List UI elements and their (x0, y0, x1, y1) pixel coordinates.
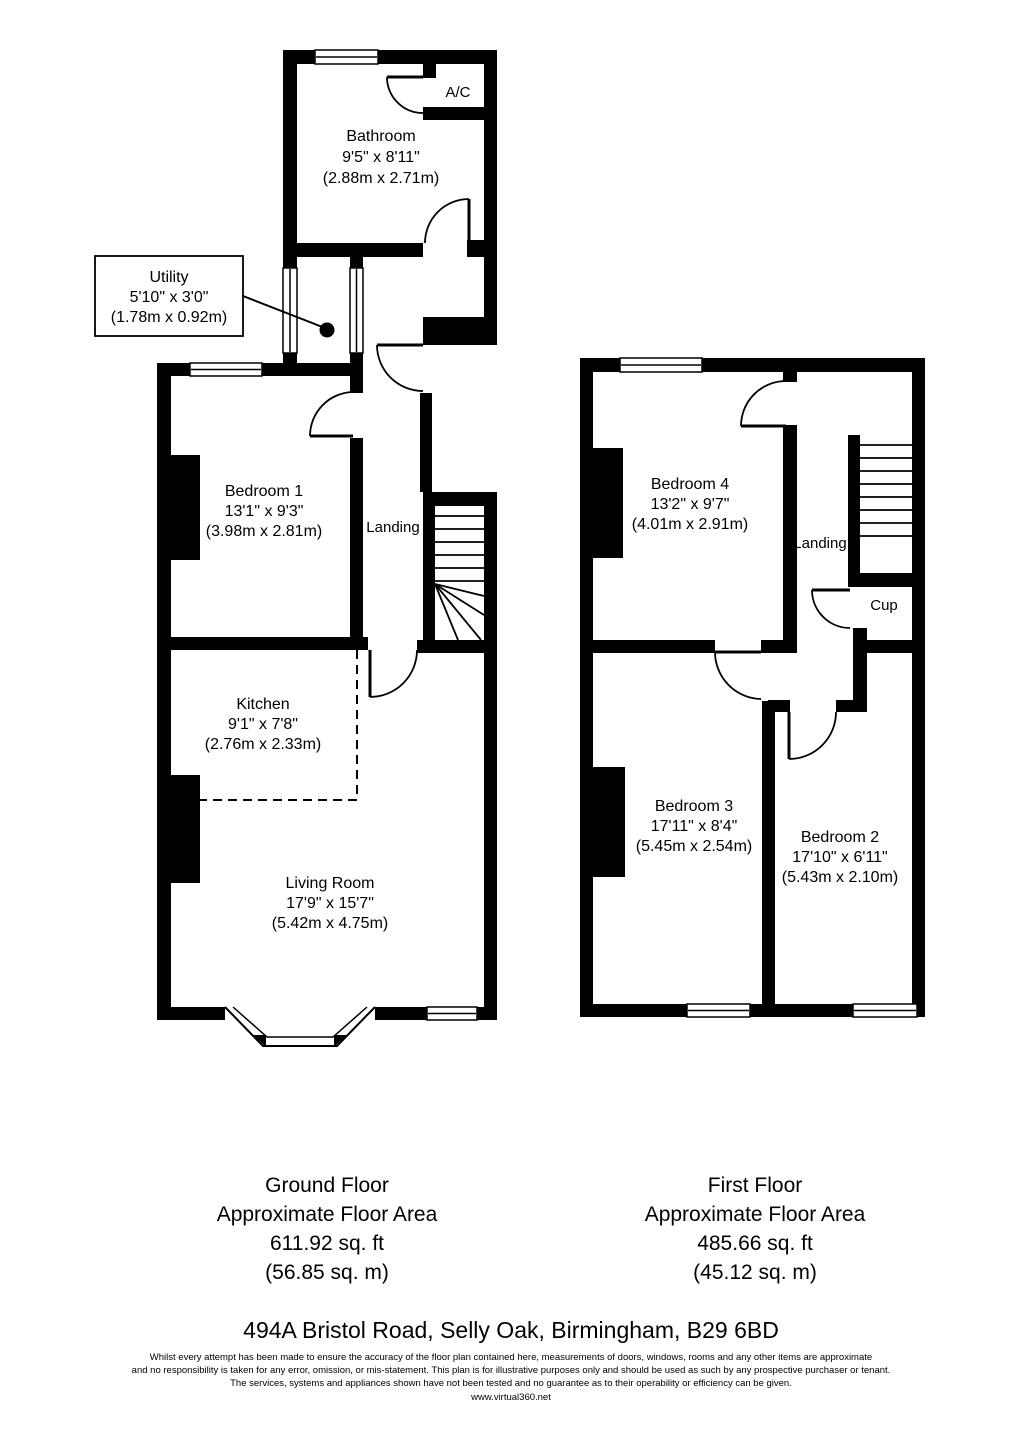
kitchen-dims-metric: (2.76m x 2.33m) (205, 736, 321, 753)
chimney-breast-bedroom1 (171, 455, 200, 560)
chimney-breast-living-room (171, 775, 200, 883)
utility-glazing-left (283, 268, 297, 353)
kitchen-label: Kitchen (236, 696, 289, 713)
bedroom4-label: Bedroom 4 (651, 476, 729, 493)
first-floor-stairs (860, 445, 912, 536)
kitchen-door (370, 650, 417, 697)
bathroom-label: Bathroom (346, 128, 415, 145)
bedroom1-dims-metric: (3.98m x 2.81m) (206, 523, 322, 540)
bathroom-dims-metric: (2.88m x 2.71m) (323, 170, 439, 187)
ground-floor-area-ft: 611.92 sq. ft (270, 1232, 384, 1255)
chimney-breast-bedroom4 (593, 448, 623, 558)
living-room-label: Living Room (286, 875, 375, 892)
living-room-window (427, 1007, 477, 1020)
first-floor-area-m: (45.12 sq. m) (693, 1261, 817, 1284)
disclaimer-line-2: and no responsibility is taken for any e… (132, 1365, 891, 1376)
ground-floor-title: Ground Floor (265, 1174, 389, 1197)
first-floor-subtitle: Approximate Floor Area (645, 1203, 866, 1226)
bedroom2-window (853, 1004, 917, 1017)
property-address: 494A Bristol Road, Selly Oak, Birmingham… (243, 1317, 779, 1343)
bedroom4-dims-imperial: 13'2" x 9'7" (651, 496, 730, 513)
first-landing-label: Landing (793, 535, 846, 552)
cupboard-door (812, 590, 850, 628)
website-url: www.virtual360.net (470, 1392, 551, 1403)
bedroom2-dims-metric: (5.43m x 2.10m) (782, 869, 898, 886)
bedroom4-dims-metric: (4.01m x 2.91m) (632, 516, 748, 533)
first-floor-title: First Floor (708, 1174, 803, 1197)
bathroom-window (315, 50, 378, 64)
cupboard-label: Cup (870, 597, 898, 614)
bedroom3-dims-metric: (5.45m x 2.54m) (636, 838, 752, 855)
utility-dims-imperial: 5'10" x 3'0" (130, 289, 209, 306)
bay-window (225, 1007, 375, 1047)
bedroom3-label: Bedroom 3 (655, 798, 733, 815)
bedroom4-window (620, 358, 702, 372)
bedroom2-label: Bedroom 2 (801, 829, 879, 846)
first-floor-area-ft: 485.66 sq. ft (697, 1232, 813, 1255)
bedroom2-dims-imperial: 17'10" x 6'11" (792, 849, 887, 866)
ground-floor-subtitle: Approximate Floor Area (217, 1203, 438, 1226)
bedroom4-door (741, 381, 786, 426)
floorplan-page: Utility 5'10" x 3'0" (1.78m x 0.92m) A/C… (0, 0, 1023, 1448)
ground-landing-label: Landing (366, 519, 419, 536)
ground-floor-area-m: (56.85 sq. m) (265, 1261, 389, 1284)
footer: Ground Floor Approximate Floor Area 611.… (132, 1174, 891, 1403)
chimney-breast-bedroom3 (593, 767, 625, 877)
first-floor-walls (580, 358, 925, 1017)
utility-label: Utility (149, 269, 188, 286)
ac-label: A/C (445, 84, 470, 101)
bedroom1-window (190, 363, 262, 376)
bedroom2-door (789, 712, 836, 759)
bathroom-door (425, 199, 469, 243)
bedroom3-dims-imperial: 17'11" x 8'4" (651, 818, 738, 835)
kitchen-dims-imperial: 9'1" x 7'8" (228, 716, 298, 733)
disclaimer-line-1: Whilst every attempt has been made to en… (150, 1352, 872, 1363)
living-room-dims-imperial: 17'9" x 15'7" (286, 895, 374, 912)
bedroom1-label: Bedroom 1 (225, 483, 303, 500)
utility-dims-metric: (1.78m x 0.92m) (111, 309, 227, 326)
bathroom-dims-imperial: 9'5" x 8'11" (342, 149, 420, 166)
bedroom1-dims-imperial: 13'1" x 9'3" (225, 503, 304, 520)
bedroom3-door (715, 652, 761, 699)
floorplan-drawing: Utility 5'10" x 3'0" (1.78m x 0.92m) A/C… (0, 0, 1023, 1448)
bedroom3-window (687, 1004, 750, 1017)
front-door (377, 345, 423, 391)
utility-callout: Utility 5'10" x 3'0" (1.78m x 0.92m) (95, 256, 335, 338)
utility-glazing-right (350, 268, 363, 353)
living-room-dims-metric: (5.42m x 4.75m) (272, 915, 388, 932)
first-floor-plan: Bedroom 4 13'2" x 9'7" (4.01m x 2.91m) L… (580, 358, 925, 1017)
bedroom1-door (310, 392, 353, 436)
ground-floor-stairs (435, 516, 484, 640)
ac-cupboard-door (387, 77, 423, 113)
disclaimer-line-3: The services, systems and appliances sho… (230, 1378, 792, 1389)
ground-floor-plan: Utility 5'10" x 3'0" (1.78m x 0.92m) A/C… (95, 50, 497, 1047)
